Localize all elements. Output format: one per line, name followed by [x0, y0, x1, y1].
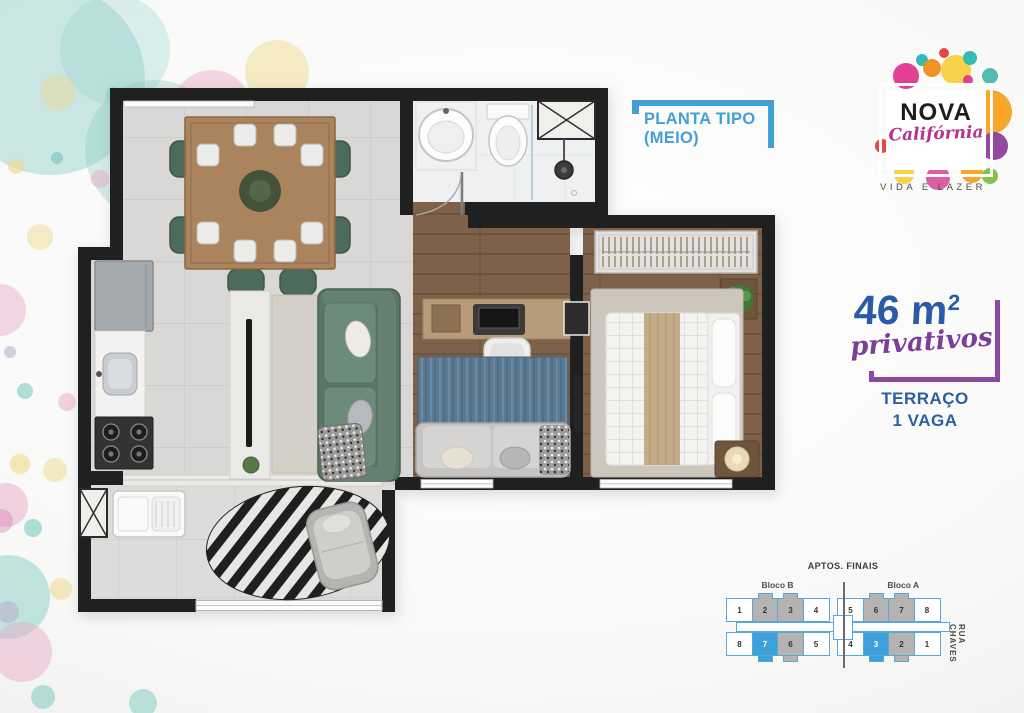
living-room	[230, 289, 400, 481]
marketing-page: PLANTA TIPO (MEIO) NOVA Califórnia VIDA …	[0, 0, 1024, 713]
study-room	[416, 299, 589, 477]
decor-bubble	[27, 224, 53, 250]
keyplan-unit: 1	[726, 598, 753, 622]
keyplan-unit: 3	[777, 598, 804, 622]
logo-bubble	[923, 59, 941, 77]
keyplan-divider	[843, 582, 845, 668]
dining-set	[170, 117, 350, 295]
logo-script: Califórnia	[886, 122, 987, 145]
sofa-throw	[539, 425, 569, 475]
area-block: 46 m2 privativos	[846, 290, 1004, 386]
decor-bubble	[129, 689, 157, 713]
keyplan-unit: 2	[888, 632, 915, 656]
terrace-line2: 1 VAGA	[846, 410, 1004, 432]
keyplan-street-label: RUA CHAVES	[948, 624, 966, 663]
logo-bubble	[963, 75, 973, 85]
logo-bubble	[982, 68, 998, 84]
decor-bubble	[17, 383, 33, 399]
keyplan-unit: 2	[752, 598, 779, 622]
washer-and-tub	[113, 491, 185, 537]
bed-runner	[644, 313, 680, 465]
decor-bubble	[31, 685, 55, 709]
logo-bubble	[963, 51, 977, 65]
bed-pillow	[712, 319, 736, 387]
keyplan-unit: 8	[726, 632, 753, 656]
keyplan-unit: 1	[914, 632, 941, 656]
decor-bubble	[8, 158, 24, 174]
area-sup: 2	[947, 290, 961, 315]
sofa-pillow	[441, 447, 473, 469]
decor-bubble	[0, 622, 52, 682]
floor-plan	[60, 75, 780, 635]
keyplan-unit: 8	[914, 598, 941, 622]
stove	[95, 417, 153, 469]
bath-shaft-x	[538, 101, 595, 139]
keyplan-building: 12345678 87654321 RUA CHAVES	[726, 598, 960, 656]
panel-plant	[243, 457, 259, 473]
keyplan-title: APTOS. FINAIS	[712, 561, 974, 571]
dining-window	[124, 101, 254, 107]
fridge	[95, 261, 153, 331]
plan-type-line2: (MEIO)	[644, 129, 755, 148]
tv	[246, 319, 252, 447]
bedroom-tv	[574, 375, 581, 433]
sofa-pillow	[500, 447, 530, 469]
faucet	[96, 371, 102, 377]
sofa-blanket	[317, 423, 366, 481]
key-plan: APTOS. FINAIS Bloco B Bloco A 12345678 8…	[712, 561, 974, 656]
logo-tagline: VIDA E LAZER	[866, 182, 1000, 193]
logo-bubble	[939, 48, 949, 58]
keyplan-unit: 7	[752, 632, 779, 656]
decor-bubble	[4, 346, 16, 358]
keyplan-unit: 4	[803, 598, 830, 622]
decor-bubble	[10, 454, 30, 474]
keyplan-bloco-b-label: Bloco B	[761, 580, 793, 590]
keyplan-unit: 3	[863, 632, 890, 656]
sink-faucet	[443, 108, 449, 114]
decor-bubble	[24, 519, 42, 537]
keyplan-unit: 6	[777, 632, 804, 656]
terrace-shaft-x	[80, 489, 107, 537]
keyplan-unit: 6	[863, 598, 890, 622]
keyplan-unit: 7	[888, 598, 915, 622]
keyplan-unit: 5	[803, 632, 830, 656]
dining-chair	[280, 269, 316, 295]
logo-bubble	[893, 63, 919, 89]
decor-bubble	[0, 284, 26, 336]
bedroom	[574, 231, 759, 477]
desk-frame	[564, 302, 589, 335]
terrace-line1: TERRAÇO	[846, 388, 1004, 410]
brand-logo: NOVA Califórnia VIDA E LAZER	[866, 46, 1000, 198]
plan-type-label: PLANTA TIPO (MEIO)	[632, 100, 772, 152]
keyplan-bloco-a-label: Bloco A	[887, 580, 919, 590]
logo-box: NOVA Califórnia	[886, 90, 986, 170]
door-threshold	[413, 202, 465, 215]
terrace-info: TERRAÇO 1 VAGA	[846, 388, 1004, 432]
kitchen	[95, 261, 153, 469]
plan-type-line1: PLANTA TIPO	[644, 110, 755, 129]
living-rug	[272, 295, 322, 473]
desk-box	[432, 305, 460, 332]
